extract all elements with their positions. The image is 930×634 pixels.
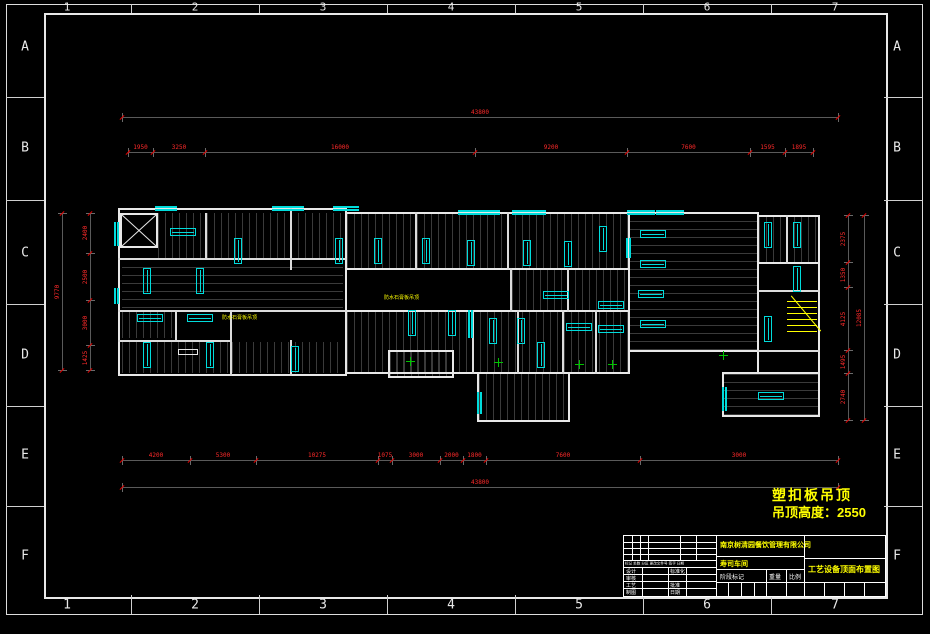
light-fixture [758,392,784,400]
wall-line [757,290,820,292]
grid-tick [884,304,922,305]
title-block-cell: 审核 [626,575,636,582]
grid-row-label-left: F [21,549,29,564]
wall-line [118,258,347,260]
window-segment [626,238,631,258]
ceiling-note-line1: 塑扣板吊顶 [772,487,888,504]
window-segment [272,206,304,211]
grid-col-label-bottom: 5 [575,598,583,613]
grid-tick [884,506,922,507]
title-block-project: 寿司车间 [720,559,748,569]
dimension-text: 7600 [681,145,695,151]
dimension-text: 2740 [841,389,847,403]
grid-tick [884,200,922,201]
title-block-cell: 标准化 [670,568,685,575]
light-fixture [374,238,382,264]
grid-tick [131,4,132,13]
dimension-line [848,215,849,420]
light-fixture [523,240,531,266]
light-fixture [793,222,801,248]
dimension-text: 3000 [83,315,89,329]
light-fixture [291,346,299,372]
dimension-text: 43800 [471,110,489,116]
dimension-text: 43800 [471,480,489,486]
light-fixture [564,241,572,267]
stair-symbol [787,296,817,332]
grid-tick [884,406,922,407]
grid-tick [387,595,388,614]
sprinkler-cross-icon [406,357,415,366]
grid-col-label-bottom: 1 [63,598,71,613]
window-segment [477,392,482,414]
title-block-cell: 工艺 [626,582,636,589]
dimension-text: 16000 [331,145,349,151]
light-fixture [234,238,242,264]
light-fixture [137,314,163,322]
wall-line [786,215,788,264]
grid-row-label-left: B [21,141,29,156]
dimension-line [90,213,91,370]
light-fixture [422,238,430,264]
grid-row-label-left: A [21,40,29,55]
dimension-line [864,215,865,420]
light-fixture [793,266,801,292]
dimension-text: 3250 [172,145,186,151]
title-block-drawing-title: 工艺设备顶面布置图 [808,564,880,575]
wall [345,212,630,270]
dimension-text: 4200 [149,453,163,459]
light-fixture [598,301,624,309]
dimension-line [122,117,838,118]
window-segment [114,222,119,246]
window-segment [458,210,500,215]
grid-col-label-bottom: 7 [831,598,839,613]
window-segment [155,206,177,211]
grid-tick [6,506,44,507]
title-block-stage-label: 阶段标记 [720,572,744,581]
dimension-text: 2400 [83,226,89,240]
grid-tick [884,97,922,98]
light-fixture [143,268,151,294]
grid-col-label-top: 5 [576,1,583,14]
dimension-line [128,152,813,153]
dimension-text: 3000 [732,453,746,459]
title-block-rev-header: 标记 处数 分区 更改文件号 签字 日期 [625,561,684,566]
light-fixture [408,310,416,336]
grid-tick [6,406,44,407]
dimension-text: 1495 [841,354,847,368]
grid-tick [515,4,516,13]
light-fixture [143,342,151,368]
light-fixture [206,342,214,368]
title-block-cell: 日期 [670,589,680,596]
light-fixture [598,325,624,333]
grid-row-label-left: C [21,246,29,261]
ceiling-note: 塑扣板吊顶 吊顶高度：2550 [772,487,888,521]
light-fixture [764,222,772,248]
room-ceiling-label: 防水石膏板吊顶 [384,295,419,301]
dimension-line [122,487,838,488]
grid-col-label-bottom: 3 [319,598,327,613]
grid-tick [6,304,44,305]
light-fixture [170,228,196,236]
light-fixture [543,291,569,299]
dimension-text: 1800 [467,453,481,459]
window-segment [512,210,546,215]
sprinkler-cross-icon [608,360,617,369]
grid-tick [643,595,644,614]
dimension-text: 12085 [857,308,863,326]
light-fixture [640,230,666,238]
wall-line [562,310,564,374]
dimension-text: 4125 [841,311,847,325]
wall [345,268,630,312]
window-segment [722,387,727,411]
grid-row-label-right: E [893,448,901,463]
sprinkler-cross-icon [575,360,584,369]
title-block-cell: 批准 [670,582,680,589]
grid-tick [643,4,644,13]
grid-row-label-right: B [893,141,901,156]
cad-sheet: 11223344556677AABBCCDDEEFF 防水石膏板吊顶防水石膏板吊… [0,0,930,634]
grid-row-label-right: D [893,348,901,363]
elevator-shaft-symbol [120,213,158,252]
grid-tick [6,200,44,201]
wall-line [415,212,417,270]
dimension-text: 9770 [55,284,61,298]
title-block: 南京树清园餐饮管理有限公司 寿司车间 阶段标记 重量 比例 工艺设备顶面布置图 … [623,535,886,597]
light-fixture [566,323,592,331]
light-fixture [187,314,213,322]
sprinkler-cross-icon [494,358,503,367]
light-fixture [467,240,475,266]
grid-tick [515,595,516,614]
grid-tick [387,4,388,13]
dimension-text: 1075 [378,453,392,459]
dimension-text: 1950 [133,145,147,151]
grid-col-label-bottom: 6 [703,598,711,613]
grid-row-label-right: F [893,549,901,564]
light-fixture [517,318,525,344]
light-fixture [448,310,456,336]
window-segment [468,310,473,338]
light-fixture [537,342,545,368]
window-segment [627,210,655,215]
light-fixture [335,238,343,264]
window-segment [333,206,359,211]
grid-col-label-top: 1 [64,1,71,14]
title-block-scale-label: 比例 [789,572,801,581]
wall-line [507,212,509,270]
ceiling-note-line2: 吊顶高度：2550 [772,504,888,521]
dimension-text: 3000 [409,453,423,459]
grid-row-label-left: E [21,448,29,463]
grid-col-label-top: 2 [192,1,199,14]
grid-col-label-top: 4 [448,1,455,14]
title-block-weight-label: 重量 [769,572,781,581]
grid-tick [259,595,260,614]
grid-col-label-top: 3 [320,1,327,14]
sprinkler-cross-icon [719,351,728,360]
wall-line [757,350,820,352]
dimension-text: 1895 [792,145,806,151]
grid-tick [771,4,772,13]
title-block-cell: 制图 [626,589,636,596]
dimension-text: 10275 [308,453,326,459]
light-fixture [764,316,772,342]
grid-row-label-right: C [893,246,901,261]
dimension-text: 7600 [556,453,570,459]
grid-col-label-bottom: 2 [191,598,199,613]
wall-line [595,310,597,374]
wall [477,372,570,422]
light-fixture [640,320,666,328]
grid-tick [259,4,260,13]
dimension-text: 2375 [841,231,847,245]
fitting-box [178,349,198,355]
dimension-text: 1350 [841,267,847,281]
wall-line [567,268,569,312]
grid-col-label-top: 6 [704,1,711,14]
title-block-cell: 设计 [626,568,636,575]
light-fixture [640,260,666,268]
light-fixture [196,268,204,294]
wall-line [118,310,347,312]
grid-row-label-left: D [21,348,29,363]
dimension-text: 5300 [216,453,230,459]
light-fixture [638,290,664,298]
grid-row-label-right: A [893,40,901,55]
dimension-line [62,213,63,370]
grid-col-label-bottom: 4 [447,598,455,613]
dimension-text: 9200 [544,145,558,151]
window-segment [114,288,119,304]
dimension-text: 1425 [83,350,89,364]
wall [388,350,454,378]
wall-line [205,213,207,258]
title-block-company: 南京树清园餐饮管理有限公司 [720,540,811,550]
window-segment [656,210,684,215]
dimension-text: 2500 [83,269,89,283]
dimension-text: 1595 [760,145,774,151]
grid-col-label-top: 7 [832,1,839,14]
room-ceiling-label: 防水石膏板吊顶 [222,315,257,321]
dimension-line [122,460,838,461]
shaft-x-icon [120,213,158,248]
wall-line [175,310,177,340]
grid-tick [6,97,44,98]
light-fixture [489,318,497,344]
wall-line [290,208,292,270]
wall-line [118,340,232,342]
light-fixture [599,226,607,252]
dimension-text: 2000 [444,453,458,459]
grid-tick [131,595,132,614]
grid-tick [771,595,772,614]
wall-line [510,268,512,312]
